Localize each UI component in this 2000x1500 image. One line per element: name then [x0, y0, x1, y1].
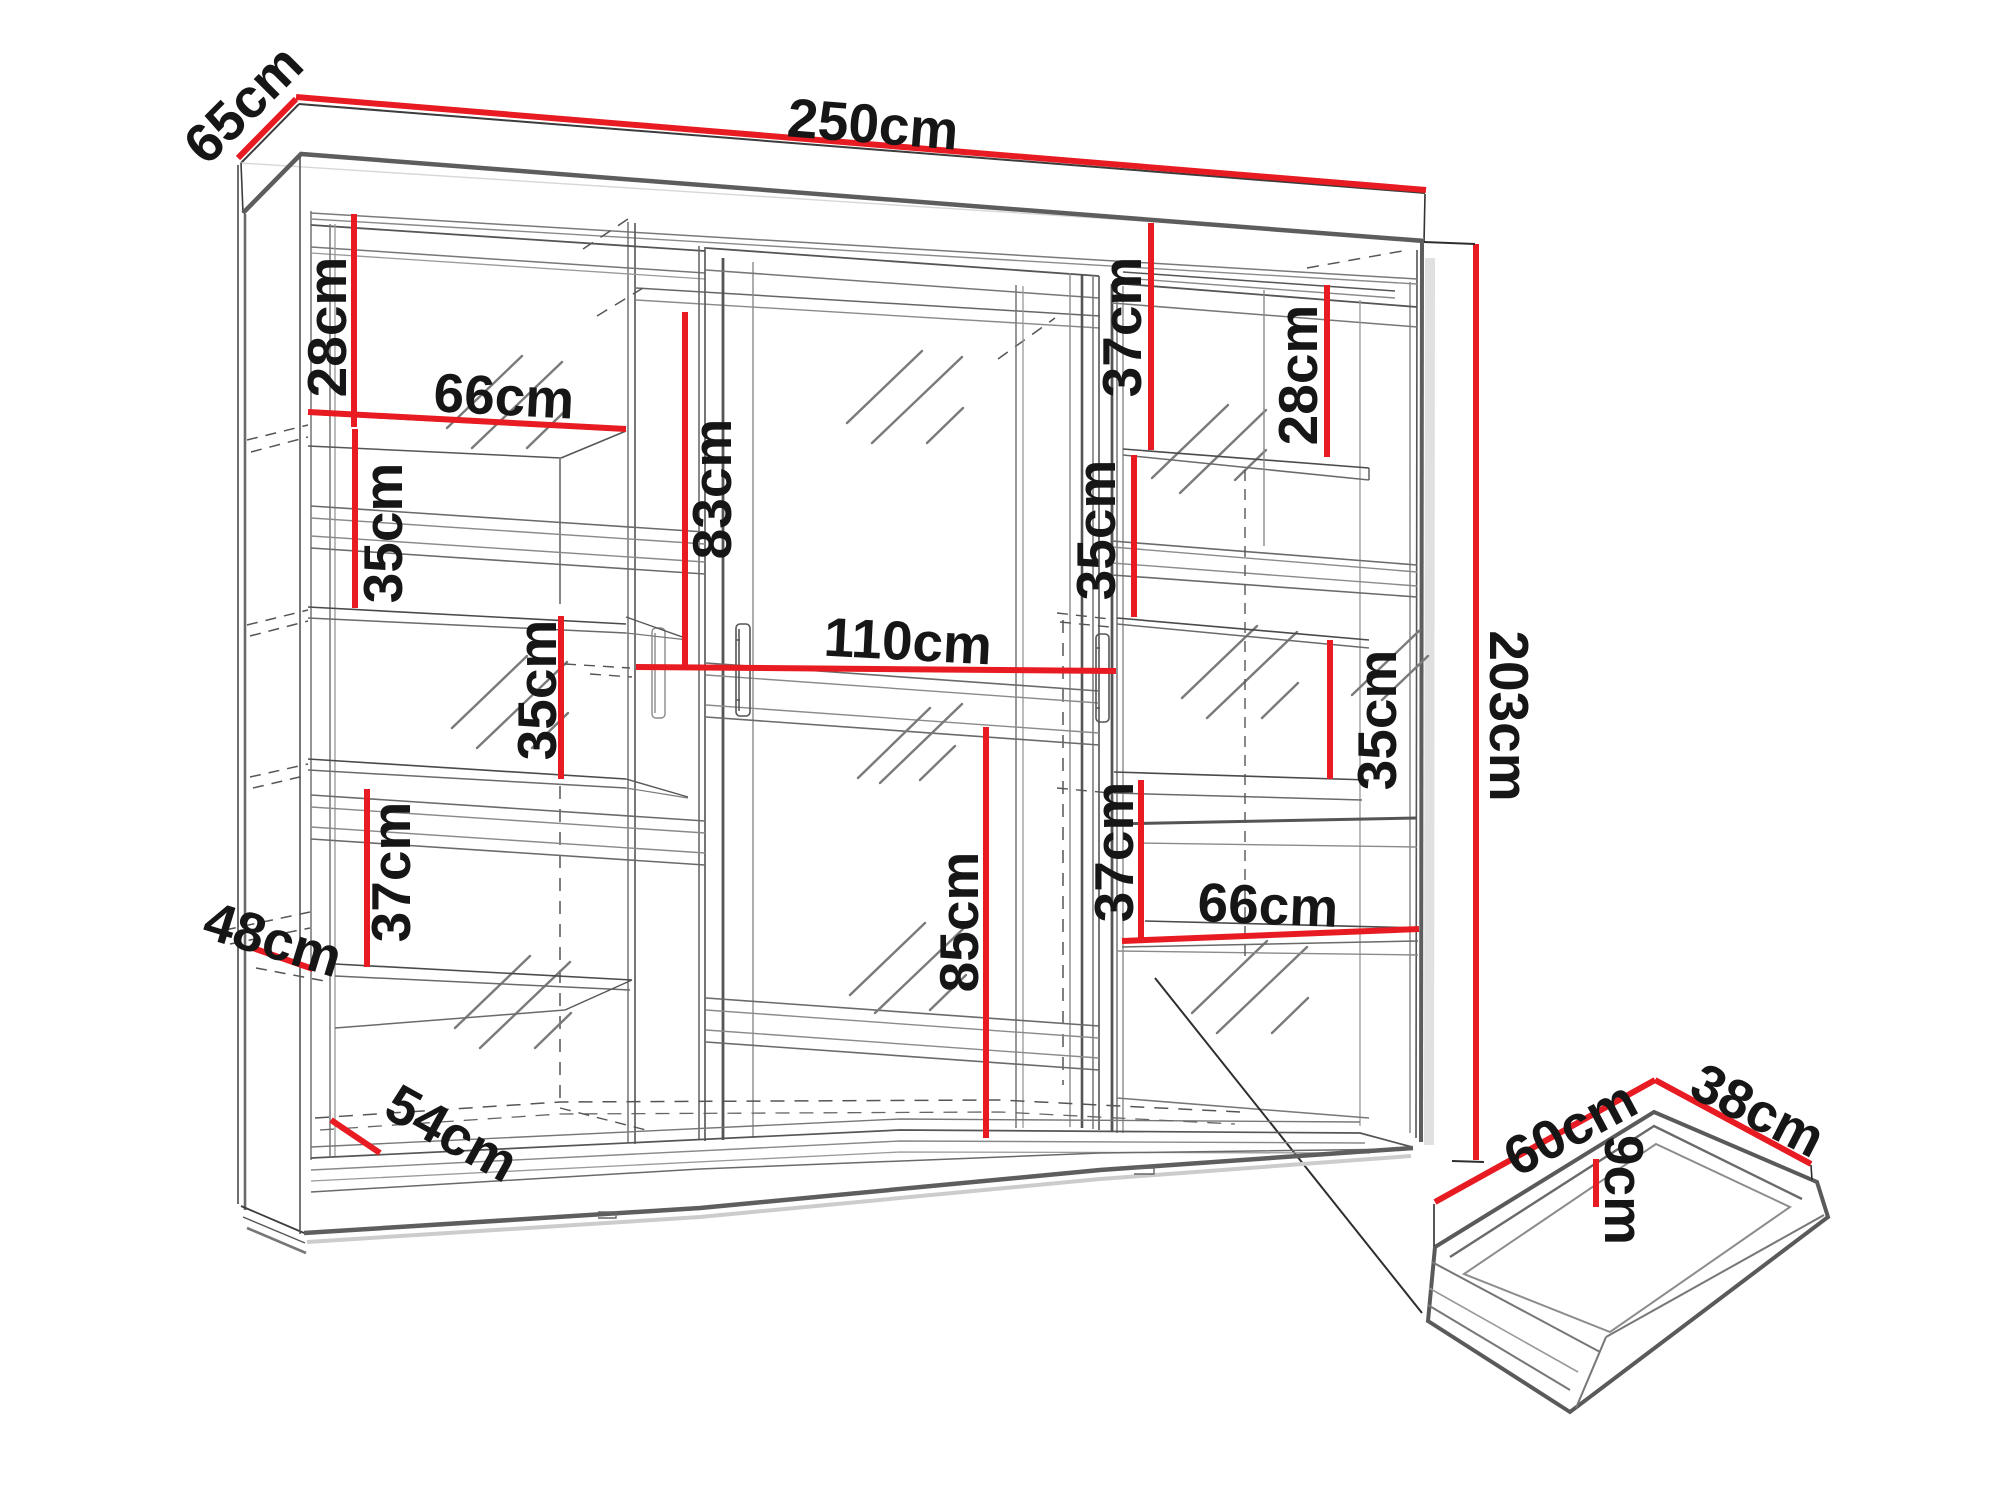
svg-text:35cm: 35cm [352, 463, 414, 604]
svg-text:110cm: 110cm [822, 606, 993, 677]
svg-text:28cm: 28cm [296, 257, 358, 398]
svg-text:35cm: 35cm [506, 620, 568, 761]
svg-text:66cm: 66cm [1196, 871, 1339, 939]
svg-text:35cm: 35cm [1346, 650, 1408, 791]
svg-text:37cm: 37cm [360, 802, 422, 943]
svg-text:37cm: 37cm [1091, 257, 1153, 398]
svg-text:28cm: 28cm [1267, 305, 1329, 446]
svg-text:66cm: 66cm [432, 361, 576, 430]
svg-text:203cm: 203cm [1478, 630, 1540, 801]
svg-text:9cm: 9cm [1593, 1135, 1655, 1245]
svg-text:85cm: 85cm [928, 852, 990, 993]
svg-text:35cm: 35cm [1065, 460, 1127, 601]
svg-text:37cm: 37cm [1083, 782, 1145, 923]
svg-text:83cm: 83cm [681, 419, 743, 560]
